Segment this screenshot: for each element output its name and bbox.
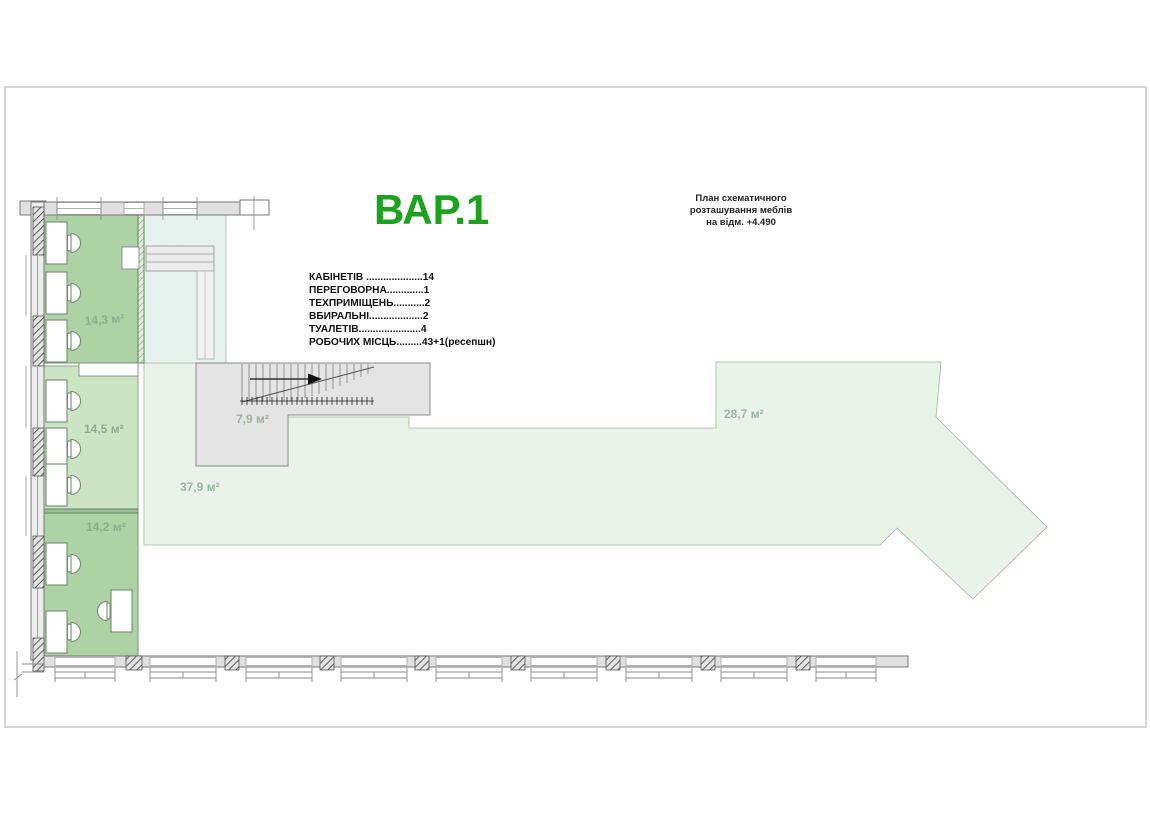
svg-text:ТЕХПРИМІЩЕНЬ...........2: ТЕХПРИМІЩЕНЬ...........2 (309, 298, 431, 309)
svg-text:розташування меблів: розташування меблів (690, 205, 792, 216)
svg-text:37,9 м²: 37,9 м² (180, 480, 220, 494)
svg-text:28,7 м²: 28,7 м² (724, 407, 764, 421)
svg-text:7,9 м²: 7,9 м² (236, 412, 269, 426)
svg-text:ТУАЛЕТІВ......................: ТУАЛЕТІВ......................4 (309, 324, 427, 335)
svg-text:14,2 м²: 14,2 м² (86, 520, 126, 534)
svg-text:План схематичного: План схематичного (695, 193, 786, 204)
svg-text:КАБІНЕТІВ ....................: КАБІНЕТІВ ....................14 (309, 272, 434, 283)
svg-text:ВБИРАЛЬНІ...................2: ВБИРАЛЬНІ...................2 (309, 311, 429, 322)
svg-text:РОБОЧИХ МІСЦЬ.........43+1(рес: РОБОЧИХ МІСЦЬ.........43+1(ресепшн) (309, 337, 495, 348)
svg-text:14,3 м²: 14,3 м² (84, 311, 124, 328)
svg-text:14,5 м²: 14,5 м² (84, 422, 124, 436)
svg-text:на відм. +4.490: на відм. +4.490 (706, 217, 776, 228)
svg-text:ПЕРЕГОВОРНА.............1: ПЕРЕГОВОРНА.............1 (309, 285, 430, 296)
svg-text:ВАР.1: ВАР.1 (374, 186, 489, 233)
